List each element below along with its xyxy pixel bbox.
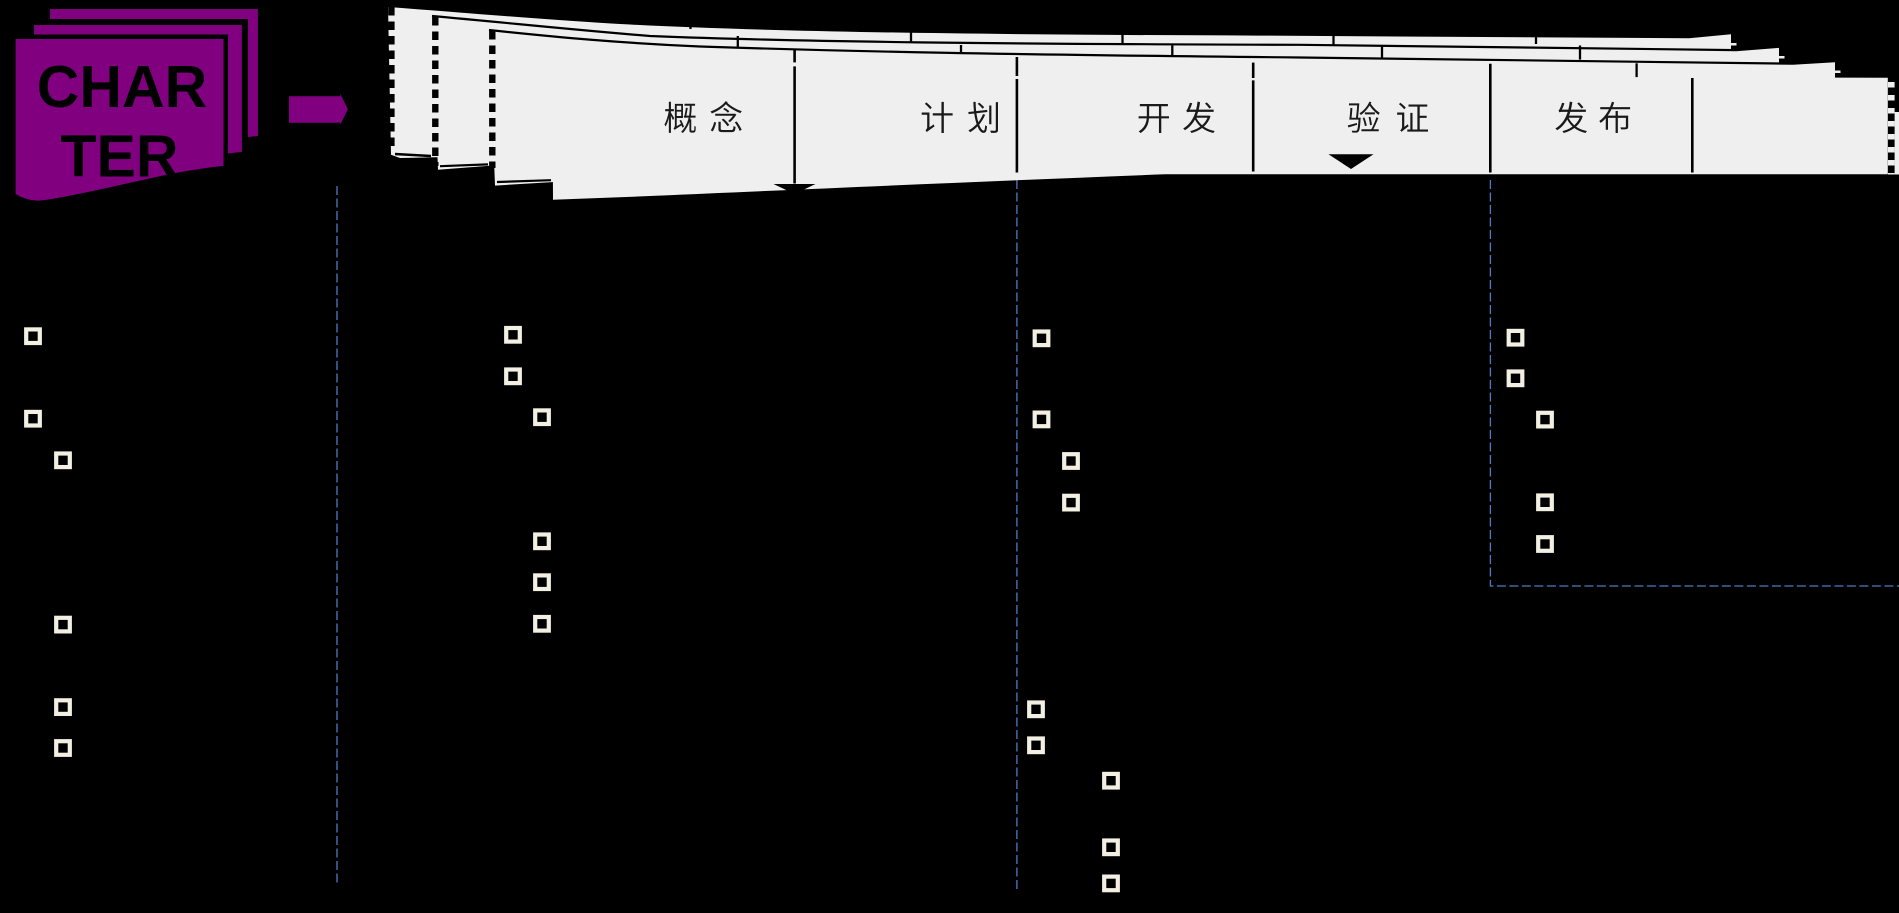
svg-text:CHAR: CHAR: [37, 54, 207, 120]
svg-text:TER: TER: [61, 124, 179, 190]
